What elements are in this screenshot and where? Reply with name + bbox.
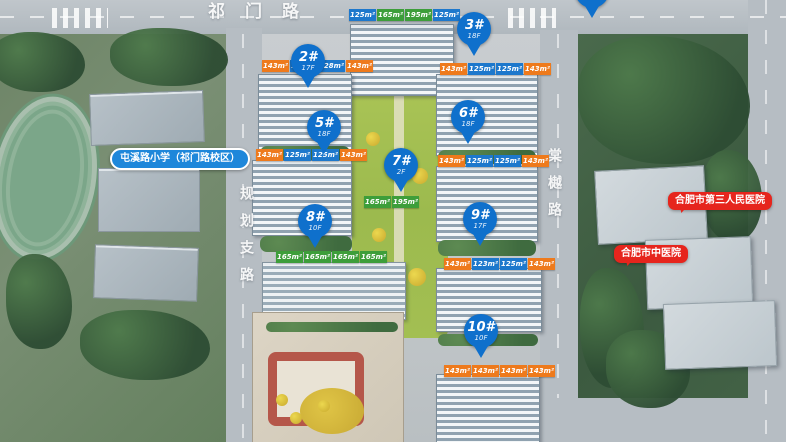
unit-area-label: 143m²: [256, 149, 283, 161]
yellow-tree: [318, 400, 330, 412]
pin-floors: 10F: [475, 334, 488, 342]
unit-area-label: 143m²: [438, 155, 465, 167]
pin-head: 8# 10F: [298, 204, 332, 238]
building-pin-6[interactable]: 6# 18F: [450, 100, 486, 144]
unit-area-label: 143m²: [440, 63, 467, 75]
unit-area-label: 143m²: [262, 60, 289, 72]
unit-area-label: 165m²: [377, 9, 404, 21]
pin-head: 9# 17F: [463, 202, 497, 236]
unit-labels-building-6: 143m² 125m² 125m² 143m²: [438, 155, 549, 167]
pin-head: 2# 17F: [291, 44, 325, 78]
pin-number: 7#: [392, 155, 410, 168]
school-building: [98, 168, 200, 232]
building-pin-9[interactable]: 9# 17F: [462, 202, 498, 246]
pin-head: 10# 10F: [464, 314, 498, 348]
pin-floors: 18F: [468, 32, 481, 40]
pin-tail: [301, 76, 315, 88]
pin-floors: 18F: [462, 120, 475, 128]
unit-labels-building-7: 165m² 195m²: [364, 196, 419, 208]
unit-labels-building-10: 143m² 143m² 143m² 143m²: [444, 365, 555, 377]
unit-area-label: 165m²: [364, 196, 391, 208]
pin-head: 3# 18F: [457, 12, 491, 46]
unit-area-label: 143m²: [472, 365, 499, 377]
pin-tail: [467, 44, 481, 56]
pin-head: 7# 2F: [384, 148, 418, 182]
aerial-masterplan-render: 祁门路 规划支路 棠樾路 屯溪路小学（祁门路校区） 合肥市第三人民医院 合肥市中…: [0, 0, 786, 442]
unit-area-label: 165m²: [276, 251, 303, 263]
school-building: [93, 244, 199, 302]
unit-area-label: 143m²: [444, 365, 471, 377]
pin-number: 6#: [459, 107, 477, 120]
unit-labels-building-8: 165m² 165m² 165m² 165m²: [276, 251, 387, 263]
school-label: 屯溪路小学（祁门路校区）: [110, 148, 250, 170]
yellow-tree: [366, 132, 380, 146]
pin-head: 5# 18F: [307, 110, 341, 144]
unit-area-label: 125m²: [496, 63, 523, 75]
building-pin-3[interactable]: 3# 18F: [456, 12, 492, 56]
hospital-label-1: 合肥市第三人民医院: [668, 192, 772, 210]
unit-area-label: 143m²: [528, 365, 555, 377]
pin-floors: 2F: [397, 168, 405, 176]
unit-area-label: 125m²: [494, 155, 521, 167]
yellow-tree: [290, 412, 302, 424]
building-pin-partial[interactable]: [574, 0, 610, 18]
hospital-building: [663, 300, 777, 370]
unit-area-label: 123m²: [472, 258, 499, 270]
pin-number: 10#: [467, 321, 494, 334]
building-pin-5[interactable]: 5# 18F: [306, 110, 342, 154]
yellow-tree: [372, 228, 386, 242]
building-pin-8[interactable]: 8# 10F: [297, 204, 333, 248]
pin-tail: [585, 6, 599, 18]
unit-area-label: 125m²: [468, 63, 495, 75]
unit-area-label: 165m²: [304, 251, 331, 263]
building-pin-10[interactable]: 10# 10F: [463, 314, 499, 358]
pin-number: 5#: [315, 117, 333, 130]
unit-area-label: 195m²: [392, 196, 419, 208]
pin-floors: 17F: [474, 222, 487, 230]
crosswalk: [52, 8, 108, 28]
unit-area-label: 143m²: [524, 63, 551, 75]
hospital-label-2: 合肥市中医院: [614, 245, 688, 263]
road-label-guihua: 规划支路: [236, 186, 256, 294]
hedge: [266, 322, 398, 332]
pin-tail: [394, 180, 408, 192]
unit-area-label: 143m²: [340, 149, 367, 161]
unit-area-label: 143m²: [444, 258, 471, 270]
pin-number: 2#: [299, 51, 317, 64]
residential-tower-10: [436, 374, 540, 442]
road-bottom-right: [576, 398, 786, 442]
lane-marking: [765, 0, 767, 442]
unit-area-label: 165m²: [360, 251, 387, 263]
unit-area-label: 143m²: [522, 155, 549, 167]
road-right: [540, 30, 578, 442]
unit-area-label: 125m²: [500, 258, 527, 270]
yellow-tree: [276, 394, 288, 406]
pin-number: 3#: [465, 19, 483, 32]
pin-floors: 10F: [309, 224, 322, 232]
building-pin-7[interactable]: 7# 2F: [383, 148, 419, 192]
school-building: [89, 90, 205, 146]
crosswalk: [508, 8, 556, 28]
pin-tail: [317, 142, 331, 154]
unit-area-label: 125m²: [466, 155, 493, 167]
pin-number: 8#: [306, 211, 324, 224]
pin-tail: [473, 234, 487, 246]
unit-area-label: 143m²: [346, 60, 373, 72]
unit-area-label: 125m²: [349, 9, 376, 21]
pin-tail: [474, 346, 488, 358]
pin-floors: 18F: [318, 130, 331, 138]
pin-floors: 17F: [302, 64, 315, 72]
pin-head: 6# 18F: [451, 100, 485, 134]
unit-area-label: 143m²: [528, 258, 555, 270]
unit-area-label: 143m²: [500, 365, 527, 377]
pin-tail: [308, 236, 322, 248]
unit-labels-building-3: 143m² 125m² 125m² 143m²: [440, 63, 551, 75]
yellow-tree: [408, 268, 426, 286]
building-pin-2[interactable]: 2# 17F: [290, 44, 326, 88]
pin-tail: [461, 132, 475, 144]
unit-labels-building-9: 143m² 123m² 125m² 143m²: [444, 258, 555, 270]
road-label-qimen: 祁门路: [208, 0, 319, 22]
playground: [300, 388, 364, 434]
unit-area-label: 165m²: [332, 251, 359, 263]
unit-area-label: 195m²: [405, 9, 432, 21]
pin-number: 9#: [471, 209, 489, 222]
unit-labels-building-1: 125m² 165m² 195m² 125m²: [349, 9, 460, 21]
